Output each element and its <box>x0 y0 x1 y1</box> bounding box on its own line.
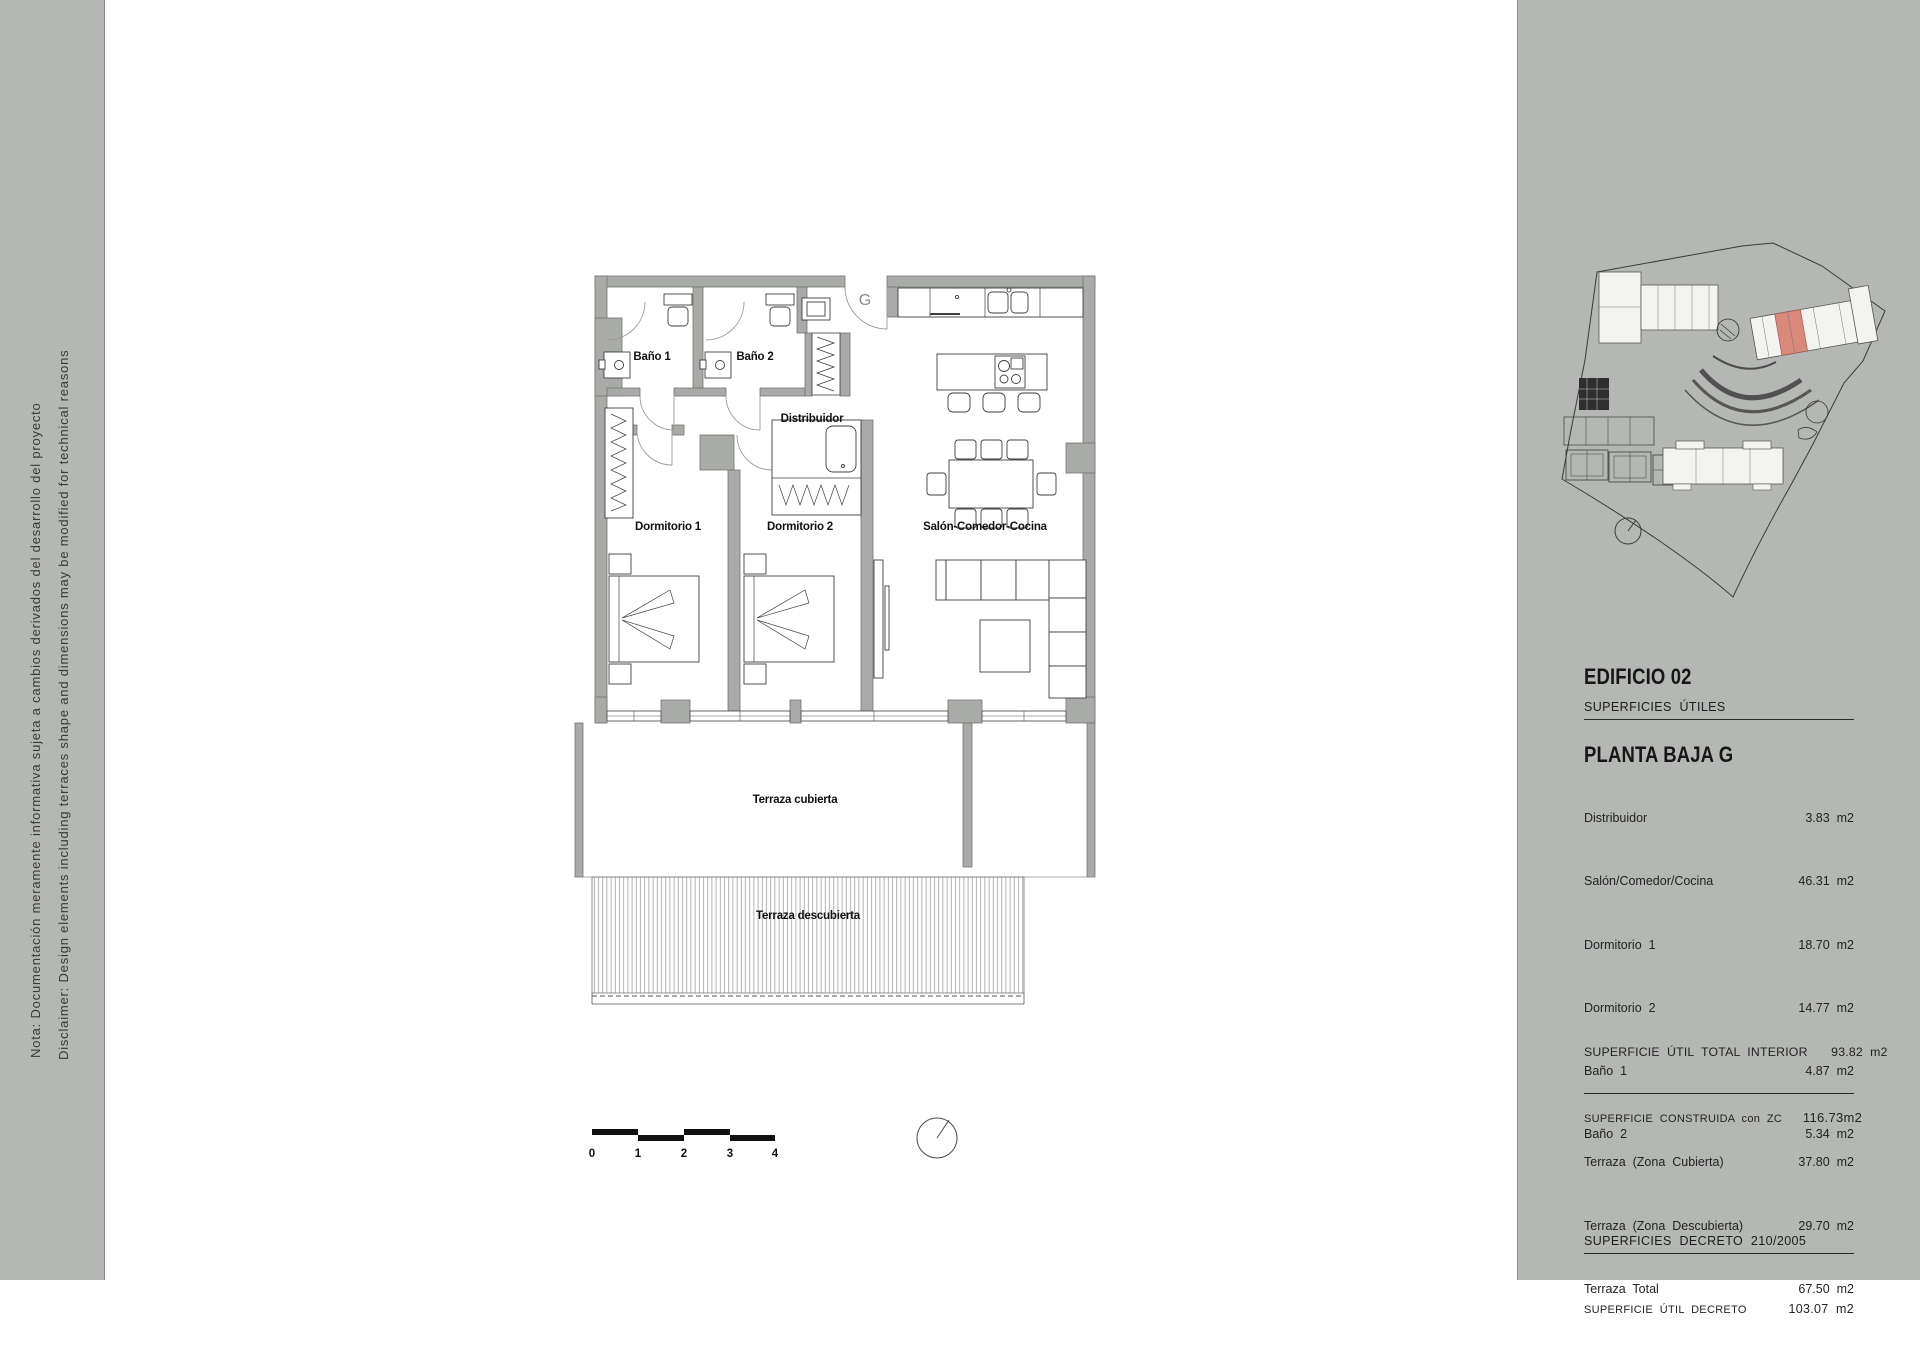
table-row: Dormitorio 118.70 m2 <box>1584 938 1854 965</box>
section-heading-decreto: SUPERFICIES DECRETO 210/2005 <box>1584 1234 1854 1254</box>
info-panel: EDIFICIO 02 PLANTA BAJA G SUPERFICIES ÚT… <box>1517 0 1920 1280</box>
table-row: Distribuidor3.83 m2 <box>1584 811 1854 838</box>
table-row: Salón/Comedor/Cocina46.31 m2 <box>1584 874 1854 901</box>
decreto-row: SUPERFICIE ÚTIL DECRETO103.07 m2 <box>1584 1266 1854 1352</box>
site-building-left <box>1599 272 1718 343</box>
site-pond <box>1798 401 1828 439</box>
site-building-bottom <box>1663 441 1783 490</box>
compass-icon <box>1615 518 1641 544</box>
site-courts <box>1564 378 1677 485</box>
plan-sheet: { "colors": { "panel_bg": "#b4b7b3", "wa… <box>0 0 1920 1280</box>
building-title: EDIFICIO 02 <box>1584 664 1733 690</box>
site-building-right <box>1748 285 1878 361</box>
table-row: Terraza (Zona Cubierta)37.80 m2 <box>1584 1155 1854 1183</box>
floor-title: PLANTA BAJA G <box>1584 742 1733 768</box>
section-heading-utiles: SUPERFICIES ÚTILES <box>1584 700 1854 720</box>
